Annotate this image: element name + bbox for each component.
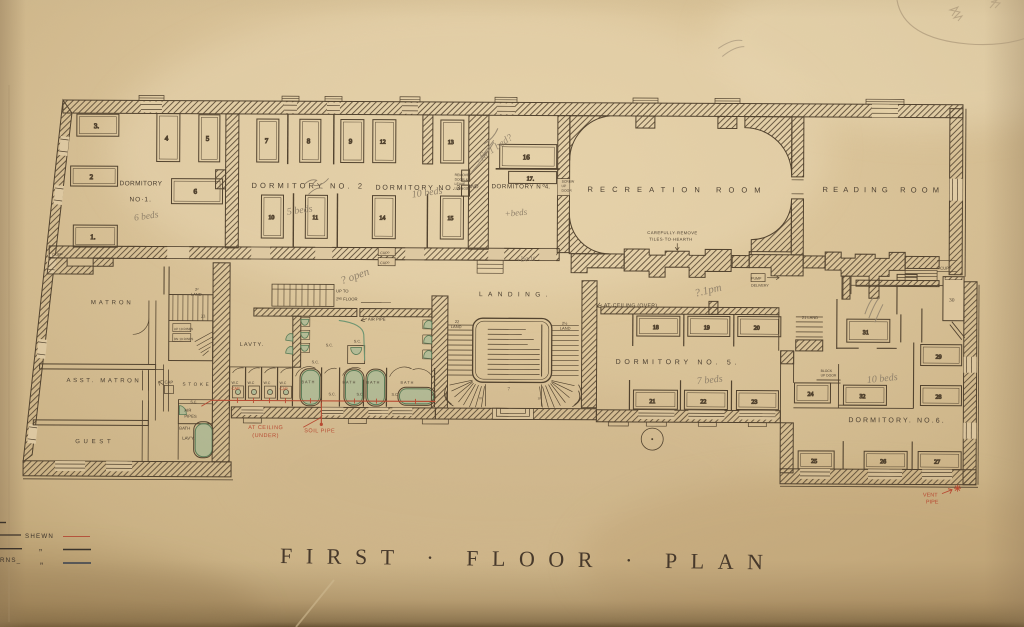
- svg-text:DORMITORY: DORMITORY: [120, 180, 164, 187]
- svg-text:14: 14: [379, 216, 385, 222]
- svg-text:UP TO: UP TO: [336, 288, 349, 293]
- svg-text:REMOVE: REMOVE: [455, 173, 470, 177]
- svg-text:2: 2: [90, 173, 94, 181]
- svg-text:S.C.: S.C.: [356, 393, 363, 397]
- svg-text:W.C: W.C: [248, 381, 255, 385]
- svg-text:PUMP: PUMP: [751, 277, 762, 281]
- svg-text:º4.: º4.: [543, 184, 551, 191]
- svg-text:S.C.: S.C.: [328, 392, 335, 396]
- svg-text:13: 13: [448, 140, 454, 146]
- svg-text:S.C.: S.C.: [326, 343, 333, 347]
- svg-text:28: 28: [935, 395, 941, 401]
- svg-text:23: 23: [751, 400, 757, 406]
- svg-text:PIPES: PIPES: [184, 414, 197, 419]
- svg-text:UP DOOR: UP DOOR: [821, 373, 837, 377]
- svg-text:LEAVE: LEAVE: [455, 182, 466, 186]
- svg-text:GUEST: GUEST: [75, 439, 113, 445]
- svg-text:LANDING.: LANDING.: [479, 291, 552, 298]
- svg-text:19: 19: [704, 325, 710, 331]
- svg-text:3.: 3.: [94, 122, 100, 130]
- svg-text:VENT: VENT: [923, 493, 938, 499]
- svg-text:8: 8: [307, 137, 311, 145]
- svg-text:SHEWN: SHEWN: [25, 533, 54, 540]
- svg-text:BLOCK: BLOCK: [821, 369, 833, 373]
- svg-text:CAP: CAP: [279, 386, 288, 391]
- svg-text:12: 12: [380, 140, 386, 146]
- svg-text:(UNDER): (UNDER): [252, 433, 279, 439]
- svg-text:W.C: W.C: [232, 381, 239, 385]
- svg-text:BATH: BATH: [343, 380, 357, 384]
- svg-text:15: 15: [447, 216, 453, 222]
- svg-text:DOOR &: DOOR &: [455, 178, 469, 182]
- svg-text:LAND: LAND: [451, 324, 462, 329]
- svg-text:RECREATION ROOM: RECREATION ROOM: [588, 185, 766, 195]
- svg-text:25: 25: [811, 459, 817, 465]
- svg-text:UP 19 RISES: UP 19 RISES: [174, 327, 193, 331]
- svg-text:SCREW: SCREW: [562, 180, 575, 184]
- svg-text:26: 26: [880, 459, 886, 465]
- svg-text:BATH: BATH: [302, 380, 316, 384]
- svg-text:SOIL PIPE: SOIL PIPE: [304, 428, 335, 434]
- svg-text:9: 9: [349, 137, 353, 145]
- svg-text:DORMITORY N: DORMITORY N: [492, 183, 542, 190]
- svg-text:10: 10: [478, 396, 482, 400]
- svg-text:CAP: CAP: [165, 380, 174, 385]
- svg-text:2ᴺᴰ FLOOR: 2ᴺᴰ FLOOR: [336, 296, 358, 301]
- svg-text:READING ROOM: READING ROOM: [823, 185, 943, 195]
- svg-text:22: 22: [700, 399, 706, 405]
- svg-text:DORMITORY. NO.6.: DORMITORY. NO.6.: [848, 417, 946, 425]
- svg-text:MATRON: MATRON: [91, 300, 133, 306]
- svg-text:S.C.: S.C.: [190, 400, 197, 404]
- svg-text:DORMITORY NO. 2: DORMITORY NO. 2: [252, 181, 365, 191]
- svg-text:29: 29: [936, 355, 942, 361]
- svg-text:AND: AND: [468, 184, 479, 190]
- svg-text:21: 21: [649, 399, 655, 405]
- svg-text:21 LAND: 21 LAND: [802, 315, 818, 320]
- svg-text:S.C.: S.C.: [391, 393, 398, 397]
- svg-text:STOKE: STOKE: [183, 382, 211, 387]
- svg-text:23: 23: [201, 314, 206, 319]
- svg-text:DOOR: DOOR: [562, 189, 573, 193]
- svg-text:LAV'Y.: LAV'Y.: [182, 436, 194, 441]
- svg-text:RNS_: RNS_: [0, 557, 21, 564]
- svg-text:UP: UP: [562, 184, 567, 188]
- svg-text:„: „: [39, 542, 42, 552]
- svg-text:CAREFULLY·REMOVE: CAREFULLY·REMOVE: [647, 230, 697, 235]
- svg-text:10: 10: [268, 215, 274, 221]
- svg-text:CUPᴰ: CUPᴰ: [380, 261, 390, 265]
- svg-text:4: 4: [165, 135, 169, 143]
- svg-text:10: 10: [537, 396, 541, 400]
- svg-text:LAND: LAND: [191, 292, 202, 297]
- svg-text:W.C: W.C: [264, 381, 271, 385]
- svg-text:AIR PIPE: AIR PIPE: [368, 317, 386, 322]
- svg-text:CUPᴰ: CUPᴰ: [52, 252, 62, 257]
- svg-text:5: 5: [206, 135, 210, 143]
- svg-text:LAVTY.: LAVTY.: [240, 342, 265, 348]
- svg-text:30: 30: [949, 298, 955, 304]
- svg-text:S.C.: S.C.: [312, 360, 319, 364]
- svg-text:DN 19 RISES: DN 19 RISES: [174, 337, 194, 341]
- svg-text:DELIVERY: DELIVERY: [751, 284, 769, 288]
- svg-text:NO·1.: NO·1.: [129, 196, 152, 203]
- svg-text:CAP: CAP: [231, 386, 240, 391]
- svg-text:BATH: BATH: [367, 381, 381, 385]
- svg-text:W.C: W.C: [280, 381, 287, 385]
- svg-text:CUPᴰ: CUPᴰ: [380, 251, 390, 255]
- svg-text:BATH: BATH: [179, 426, 190, 431]
- svg-text:BATH: BATH: [401, 381, 415, 385]
- svg-text:S.C.: S.C.: [354, 340, 361, 344]
- svg-text:6: 6: [194, 188, 198, 196]
- svg-text:27: 27: [934, 460, 940, 466]
- svg-text:ASST. MATRON: ASST. MATRON: [67, 378, 141, 384]
- svg-text:LAND: LAND: [560, 326, 571, 331]
- svg-text:AT CEILING: AT CEILING: [248, 425, 283, 431]
- svg-text:DORMITORY NO. 5.: DORMITORY NO. 5.: [616, 359, 740, 367]
- svg-text:17.: 17.: [527, 176, 535, 182]
- svg-text:7: 7: [265, 137, 269, 145]
- svg-text:18: 18: [653, 325, 659, 331]
- svg-text:32: 32: [859, 394, 865, 400]
- svg-text:11: 11: [312, 215, 318, 221]
- svg-text:TILES·TO·HEARTH: TILES·TO·HEARTH: [649, 237, 692, 242]
- svg-text:PIPE: PIPE: [926, 500, 939, 506]
- svg-text:16: 16: [523, 153, 531, 161]
- svg-text:31: 31: [863, 330, 869, 336]
- svg-text:AIR: AIR: [184, 408, 191, 413]
- svg-text:„: „: [40, 556, 43, 566]
- svg-text:20: 20: [754, 326, 760, 332]
- svg-text:1.: 1.: [90, 233, 96, 241]
- svg-text:24: 24: [807, 392, 813, 398]
